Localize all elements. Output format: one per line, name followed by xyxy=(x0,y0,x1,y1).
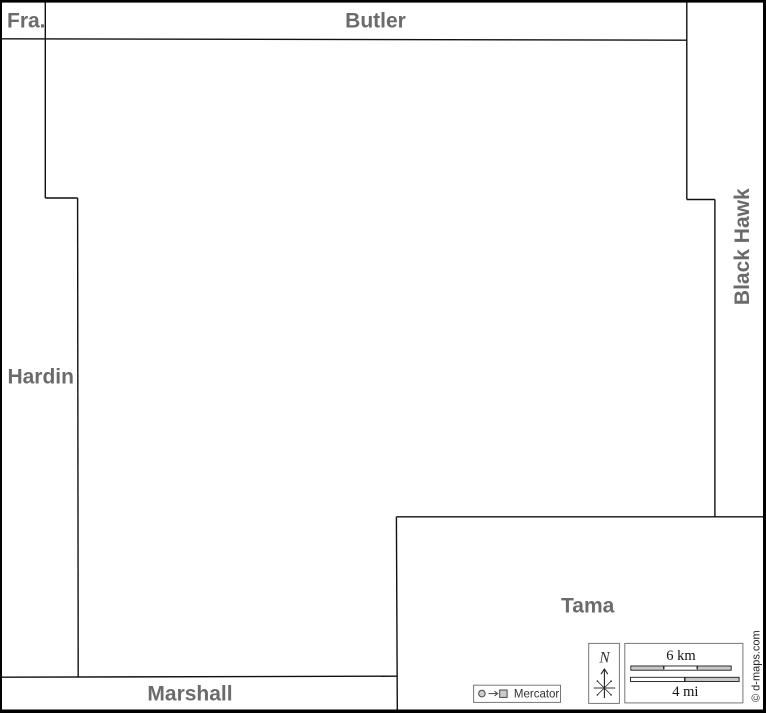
svg-text:Mercator: Mercator xyxy=(514,689,560,701)
svg-text:N: N xyxy=(598,650,611,667)
svg-text:6 km: 6 km xyxy=(666,648,696,664)
svg-text:4 mi: 4 mi xyxy=(672,684,698,700)
svg-text:Black Hawk: Black Hawk xyxy=(731,188,754,305)
svg-text:Marshall: Marshall xyxy=(147,683,232,706)
svg-text:Fra.: Fra. xyxy=(7,10,46,33)
svg-text:Tama: Tama xyxy=(561,595,615,618)
svg-text:Hardin: Hardin xyxy=(7,366,74,389)
svg-text:© d-maps.com: © d-maps.com xyxy=(751,630,763,702)
svg-text:Butler: Butler xyxy=(345,10,406,33)
